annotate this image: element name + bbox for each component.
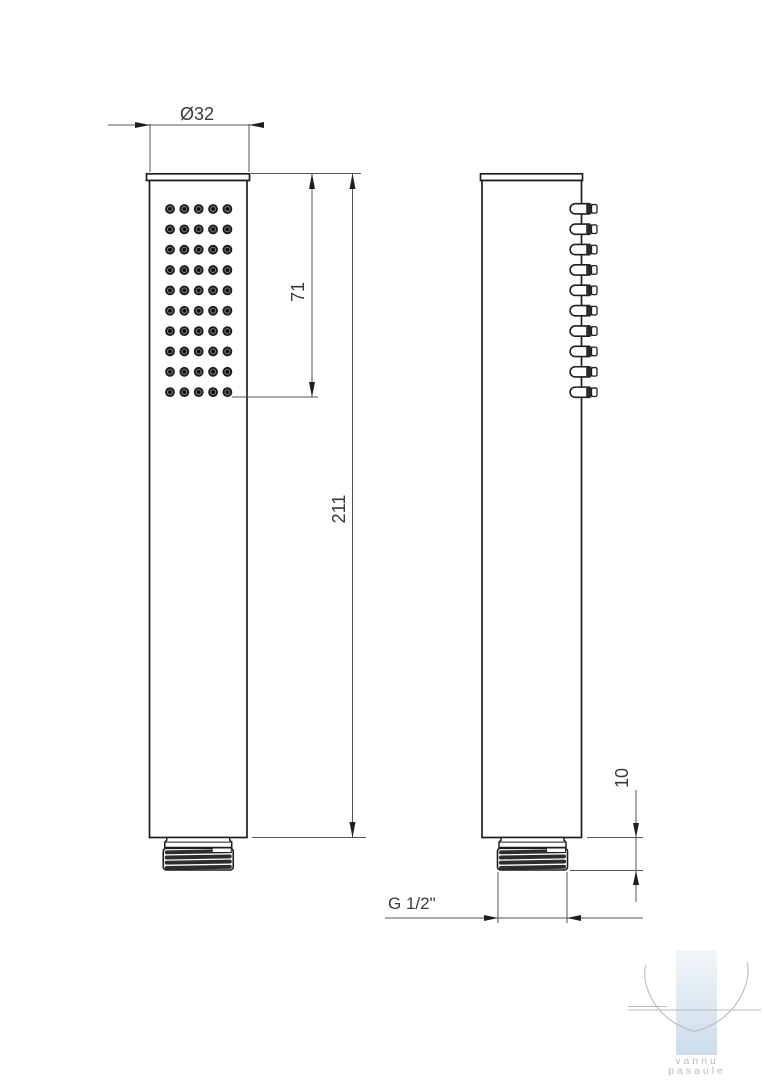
side-collar [499,838,566,848]
front-cap [147,174,250,181]
front-thread [163,848,233,870]
dimension-total-length: 211 [252,174,366,838]
diameter-label: Ø32 [180,104,214,124]
spray-face-length-label: 71 [288,282,308,302]
side-cap [481,174,583,181]
drawing-page: Ø32 71 211 10 [0,0,764,1080]
total-length-label: 211 [329,495,349,524]
watermark-text-line2: pasaule [668,1065,726,1077]
side-view [481,174,598,870]
front-view [147,174,250,870]
shower-handset-technical-drawing: Ø32 71 211 10 [0,0,764,1080]
dimension-diameter: Ø32 [108,104,264,172]
side-thread [498,848,568,870]
thread-spec-label: G 1/2" [388,894,436,913]
dimension-thread-spec: G 1/2" [385,872,643,923]
watermark-logo: vannu pasaule [628,950,761,1077]
front-collar [165,838,232,848]
side-body [482,181,582,838]
watermark-blue-bar [676,950,717,1055]
front-body [150,181,248,838]
thread-length-label: 10 [612,768,632,788]
